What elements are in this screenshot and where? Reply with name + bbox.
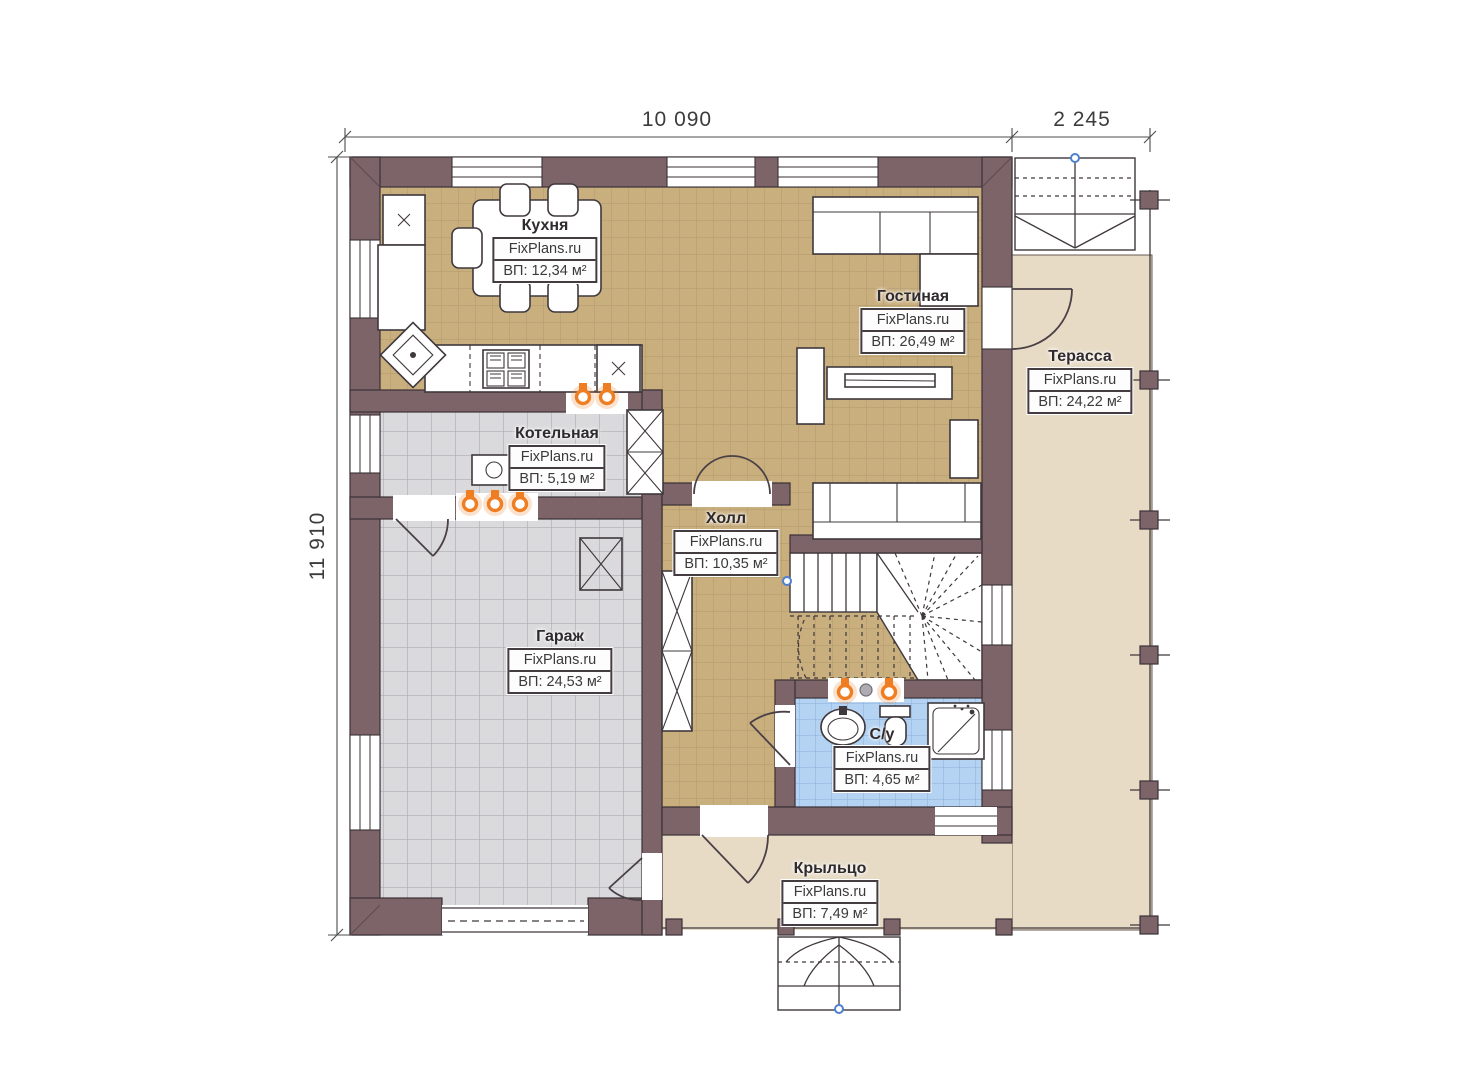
room-area: ВП: 5,19 м² [510,469,603,489]
room-label-boiler: Котельная FixPlans.ru ВП: 5,19 м² [508,425,605,491]
room-label-kitchen: Кухня FixPlans.ru ВП: 12,34 м² [492,217,597,283]
room-name: Кухня [492,217,597,235]
room-label-porch: Крыльцо FixPlans.ru ВП: 7,49 м² [781,860,878,926]
room-info-box: FixPlans.ru ВП: 7,49 м² [781,880,878,926]
room-area: ВП: 4,65 м² [835,770,928,790]
watermark: FixPlans.ru [1029,370,1130,392]
sofa [813,483,981,539]
dimension-left-height: 11 910 [306,512,330,581]
room-label-bathroom: С/у FixPlans.ru ВП: 4,65 м² [833,726,930,792]
room-name: Холл [673,510,778,528]
room-label-hall: Холл FixPlans.ru ВП: 10,35 м² [673,510,778,576]
room-name: Котельная [508,425,605,443]
room-name: Гараж [507,628,612,646]
watermark: FixPlans.ru [494,239,595,261]
room-info-box: FixPlans.ru ВП: 12,34 м² [492,237,597,283]
watermark: FixPlans.ru [783,882,876,904]
garage-floor [380,519,642,905]
watermark: FixPlans.ru [509,650,610,672]
room-info-box: FixPlans.ru ВП: 4,65 м² [833,746,930,792]
shower [928,703,984,759]
watermark: FixPlans.ru [835,748,928,770]
room-area: ВП: 24,22 м² [1029,392,1130,412]
room-area: ВП: 10,35 м² [675,554,776,574]
room-info-box: FixPlans.ru ВП: 24,22 м² [1027,368,1132,414]
dimension-top-main: 10 090 [642,108,712,132]
room-name: Крыльцо [781,860,878,878]
room-name: С/у [833,726,930,744]
room-info-box: FixPlans.ru ВП: 10,35 м² [673,530,778,576]
watermark: FixPlans.ru [862,310,963,332]
room-info-box: FixPlans.ru ВП: 26,49 м² [860,308,965,354]
room-area: ВП: 24,53 м² [509,672,610,692]
terrace-steps [1015,154,1135,250]
room-area: ВП: 7,49 м² [783,904,876,924]
fridge [383,195,425,245]
dimension-top-terrace: 2 245 [1053,108,1111,132]
column-marker [1130,191,1170,209]
room-info-box: FixPlans.ru ВП: 5,19 м² [508,445,605,491]
room-area: ВП: 26,49 м² [862,332,963,352]
armchair [950,420,978,478]
room-label-living: Гостиная FixPlans.ru ВП: 26,49 м² [860,288,965,354]
watermark: FixPlans.ru [510,447,603,469]
watermark: FixPlans.ru [675,532,776,554]
room-label-terrace: Терасса FixPlans.ru ВП: 24,22 м² [1027,348,1132,414]
room-area: ВП: 12,34 м² [494,261,595,281]
room-name: Терасса [1027,348,1132,366]
floor-plan-canvas: 10 090 2 245 11 910 Кухня FixPlans.ru ВП… [0,0,1473,1080]
stove [483,350,529,388]
entry-steps [778,937,900,1013]
room-name: Гостиная [860,288,965,306]
room-info-box: FixPlans.ru ВП: 24,53 м² [507,648,612,694]
room-label-garage: Гараж FixPlans.ru ВП: 24,53 м² [507,628,612,694]
